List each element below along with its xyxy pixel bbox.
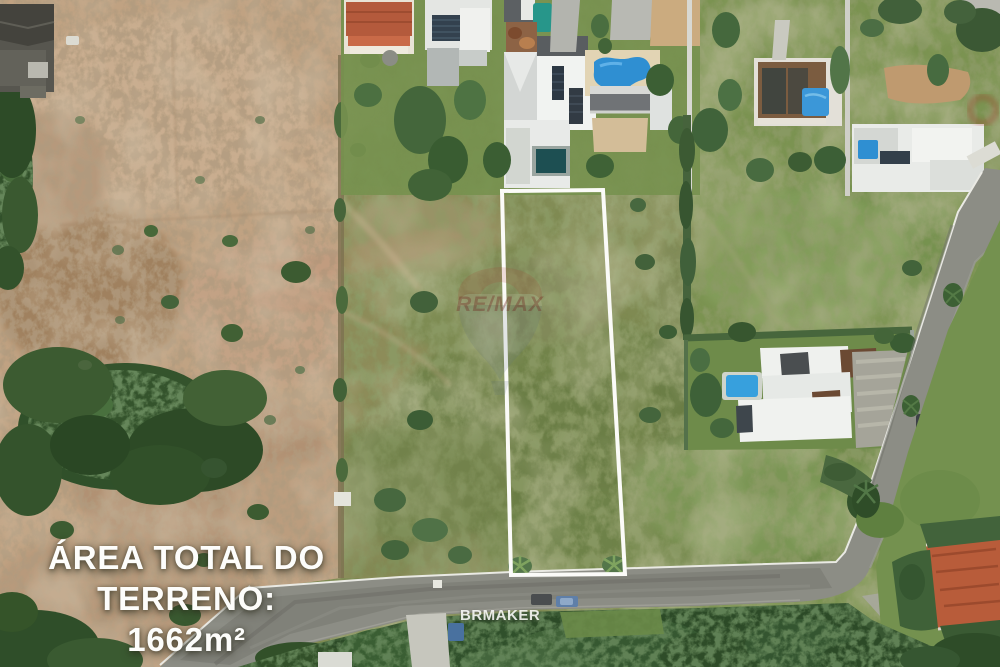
svg-text:RE/MAX: RE/MAX [456,293,545,316]
